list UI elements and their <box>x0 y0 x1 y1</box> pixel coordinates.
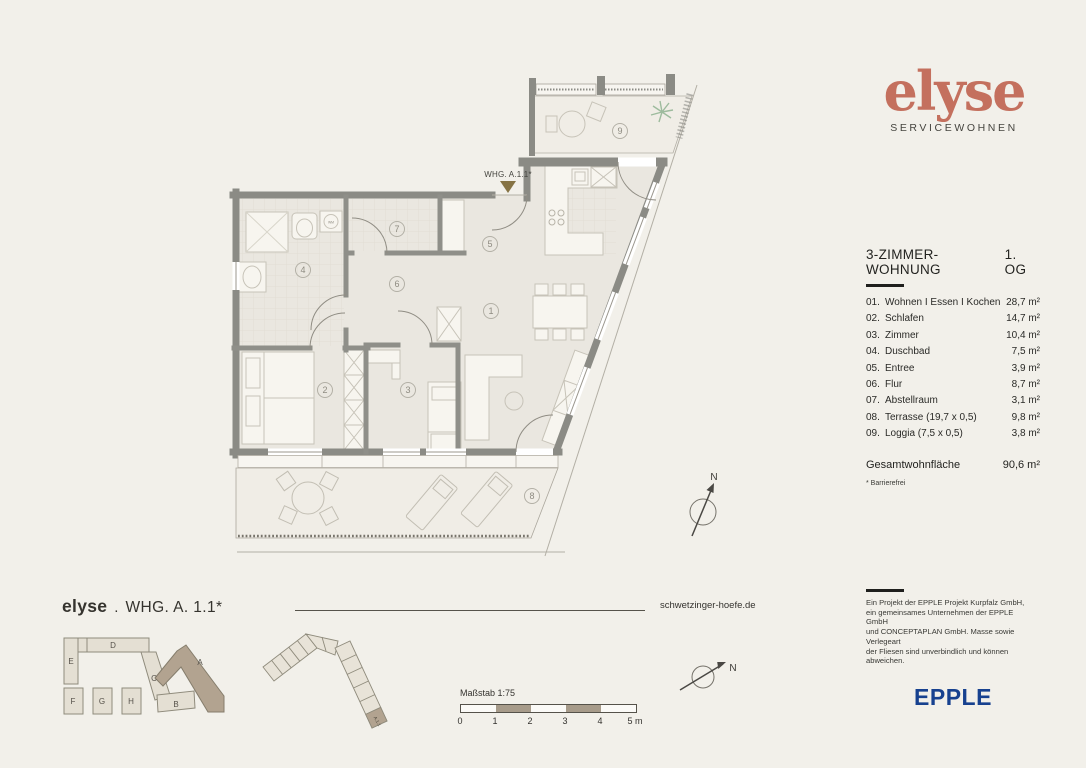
room-number: 08. <box>866 410 885 426</box>
site-buildings <box>64 638 224 714</box>
room-number: 05. <box>866 361 885 377</box>
elyse-logo: elyse <box>866 62 1042 120</box>
room-row: 01.Wohnen I Essen I Kochen28,7 m² <box>866 295 1040 311</box>
room-name: Schlafen <box>885 311 1006 327</box>
room-area: 10,4 m² <box>1006 328 1040 344</box>
room-area: 8,7 m² <box>1012 377 1040 393</box>
loggia-railing <box>529 74 675 95</box>
scale-tick: 4 <box>597 716 602 726</box>
compass-n-label: N <box>710 472 717 483</box>
room-name: Abstellraum <box>885 393 1012 409</box>
legal-text: Ein Projekt der EPPLE Projekt Kurpfalz G… <box>866 598 1028 666</box>
room-number: 04. <box>866 344 885 360</box>
room-marker-number: 4 <box>300 265 305 275</box>
room-row: 06.Flur8,7 m² <box>866 377 1040 393</box>
room-area: 3,9 m² <box>1012 361 1040 377</box>
scale-ticks: 012345 m <box>460 716 660 728</box>
terrace-floor <box>236 468 558 538</box>
site-building-label: E <box>68 657 73 666</box>
sill-band <box>238 456 558 468</box>
sheet-title-unit: WHG. A. 1.1* <box>125 599 222 617</box>
room-name: Terrasse (19,7 x 0,5) <box>885 410 1012 426</box>
brochure-page: WM <box>0 0 1086 768</box>
entree-closet <box>442 200 464 252</box>
room-name: Flur <box>885 377 1012 393</box>
scale-bar-graphic <box>460 704 637 713</box>
sheet-title-separator: . <box>114 599 118 616</box>
scale-segment <box>461 705 496 712</box>
room-marker-number: 9 <box>617 126 622 136</box>
sheet-title: elyse . WHG. A. 1.1* <box>62 596 222 617</box>
room-area: 28,7 m² <box>1006 295 1040 311</box>
wardrobe <box>344 350 364 450</box>
toilet <box>292 213 317 239</box>
room-row: 07.Abstellraum3,1 m² <box>866 393 1040 409</box>
site-building-label: A <box>197 658 203 667</box>
total-area-value: 90,6 m² <box>1003 459 1040 471</box>
sheet-title-brand: elyse <box>62 596 107 617</box>
shower <box>246 212 288 252</box>
unit-floor: 1. OG <box>1005 247 1040 277</box>
scale-tick: 3 <box>562 716 567 726</box>
room-area: 3,1 m² <box>1012 393 1040 409</box>
scale-label: Maßstab 1:75 <box>460 688 660 698</box>
site-building-label: D <box>110 641 116 650</box>
room-number: 02. <box>866 311 885 327</box>
scale-segment <box>496 705 531 712</box>
epple-logo: EPPLE <box>866 684 1040 711</box>
room-area: 14,7 m² <box>1006 311 1040 327</box>
compass-n-label: N <box>729 663 736 674</box>
total-area-label: Gesamtwohnfläche <box>866 459 960 471</box>
scale-tick: 5 m <box>627 716 642 726</box>
scale-tick: 0 <box>457 716 462 726</box>
room-marker-number: 5 <box>487 239 492 249</box>
site-building-label: F <box>71 697 76 706</box>
floor-plan: WM <box>225 55 725 565</box>
room-row: 04.Duschbad7,5 m² <box>866 344 1040 360</box>
desk <box>368 350 400 363</box>
room-number: 03. <box>866 328 885 344</box>
scale-segment <box>601 705 636 712</box>
svg-text:WM: WM <box>328 221 334 225</box>
room-row: 02.Schlafen14,7 m² <box>866 311 1040 327</box>
room-row: 08.Terrasse (19,7 x 0,5)9,8 m² <box>866 410 1040 426</box>
room-row: 05.Entree3,9 m² <box>866 361 1040 377</box>
unit-type: 3-ZIMMER-WOHNUNG <box>866 247 1005 277</box>
room-marker-number: 2 <box>322 385 327 395</box>
dining-table <box>533 284 587 340</box>
brand-block: elyse SERVICEWOHNEN <box>866 62 1042 134</box>
washing-machine: WM <box>320 211 342 232</box>
room-number: 07. <box>866 393 885 409</box>
scale-bar: Maßstab 1:75 012345 m <box>460 688 660 728</box>
room-list: 01.Wohnen I Essen I Kochen28,7 m²02.Schl… <box>866 295 1040 443</box>
room-marker-number: 7 <box>394 224 399 234</box>
room-marker-number: 6 <box>394 279 399 289</box>
scale-tick: 1 <box>492 716 497 726</box>
unit-heading: 3-ZIMMER-WOHNUNG 1. OG <box>866 247 1040 277</box>
room-row: 03.Zimmer10,4 m² <box>866 328 1040 344</box>
room-name: Wohnen I Essen I Kochen <box>885 295 1006 311</box>
site-building-label: H <box>128 697 134 706</box>
compass-site: N <box>668 645 748 705</box>
website-text: schwetzinger-hoefe.de <box>660 600 756 611</box>
scale-segment <box>566 705 601 712</box>
unit-marker-label: WHG. A.1.1* <box>484 170 532 179</box>
heading-divider <box>866 284 904 287</box>
room-row: 09.Loggia (7,5 x 0,5)3,8 m² <box>866 426 1040 442</box>
scale-segment <box>531 705 566 712</box>
site-plan: ABCDEFGH A.1.1 <box>55 628 395 740</box>
room-number: 06. <box>866 377 885 393</box>
brand-tagline: SERVICEWOHNEN <box>866 122 1042 134</box>
room-area: 7,5 m² <box>1012 344 1040 360</box>
room-marker-number: 3 <box>405 385 410 395</box>
room-area: 3,8 m² <box>1012 426 1040 442</box>
legal-divider <box>866 589 904 592</box>
room-number: 01. <box>866 295 885 311</box>
room-name: Zimmer <box>885 328 1006 344</box>
site-building-label: G <box>99 697 105 706</box>
site-building-label: C <box>151 674 157 683</box>
room-name: Entree <box>885 361 1012 377</box>
room-marker-number: 8 <box>529 491 534 501</box>
barrier-free-note: * Barrierefrei <box>866 480 905 487</box>
footer-rule <box>295 610 645 611</box>
double-bed <box>242 352 314 444</box>
unit-marker-triangle <box>500 181 516 193</box>
total-area-row: Gesamtwohnfläche 90,6 m² <box>866 459 1040 471</box>
room-number: 09. <box>866 426 885 442</box>
desk-return <box>392 363 400 379</box>
building-a-detail: A.1.1 <box>263 634 387 728</box>
room-name: Duschbad <box>885 344 1012 360</box>
living-closet <box>437 307 461 341</box>
room-marker-number: 1 <box>488 306 493 316</box>
room-name: Loggia (7,5 x 0,5) <box>885 426 1012 442</box>
site-building-label: B <box>173 700 178 709</box>
compass-plan: N <box>690 472 718 536</box>
room-area: 9,8 m² <box>1012 410 1040 426</box>
washbasin <box>238 262 266 292</box>
scale-tick: 2 <box>527 716 532 726</box>
